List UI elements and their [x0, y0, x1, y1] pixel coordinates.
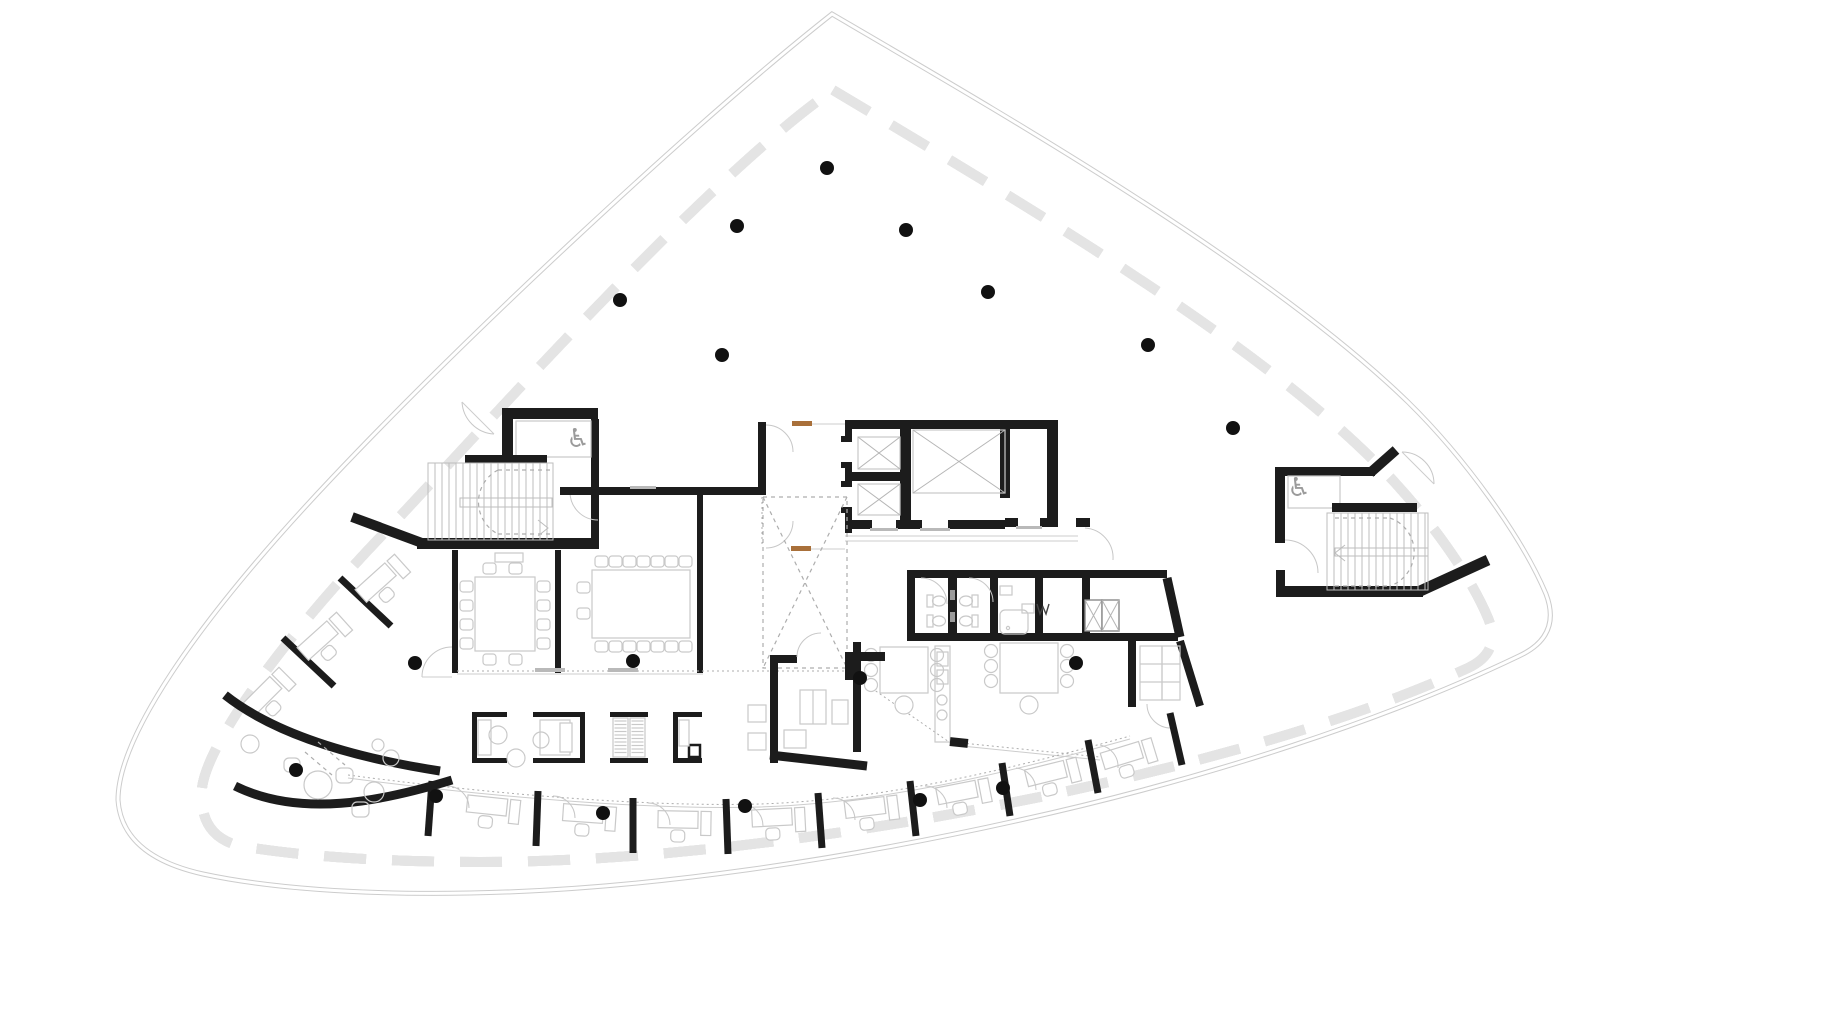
break-tables — [865, 643, 1074, 714]
desk-set — [465, 795, 521, 831]
elevator-shaft-small-1 — [858, 437, 900, 469]
desk-set — [752, 807, 807, 841]
shaft-boxes — [1085, 600, 1119, 631]
wheelchair-icon: ♿ — [566, 424, 589, 454]
west-desks — [241, 554, 415, 726]
copier-cabinets — [784, 690, 848, 748]
elevator-shaft-large — [913, 430, 1005, 493]
conference-table-small — [460, 563, 550, 665]
sanitary-block — [907, 570, 1180, 641]
west-stair-core — [352, 402, 599, 549]
storage-cabinets — [1140, 646, 1180, 700]
meeting-rooms — [422, 490, 847, 677]
desk-set — [241, 667, 300, 726]
break-table — [985, 643, 1074, 714]
focus-booth — [533, 712, 585, 763]
conference-table-large — [577, 556, 692, 652]
elevator-core — [841, 420, 1113, 560]
wheelchair-icon: ♿ — [1287, 473, 1310, 503]
focus-booth — [610, 712, 648, 763]
elevator-shaft-small-2 — [858, 484, 900, 515]
east-stair-treads — [1334, 513, 1425, 590]
floor-plan-drawing: ♿♿ — [0, 0, 1830, 1028]
desk-set — [658, 811, 712, 843]
kitchen-counter — [935, 646, 950, 742]
floor-plan-canvas: ♿♿ — [0, 0, 1830, 1028]
accent-door-leaves — [791, 421, 812, 551]
toilet-icons — [927, 586, 1034, 627]
focus-booth — [673, 712, 702, 763]
